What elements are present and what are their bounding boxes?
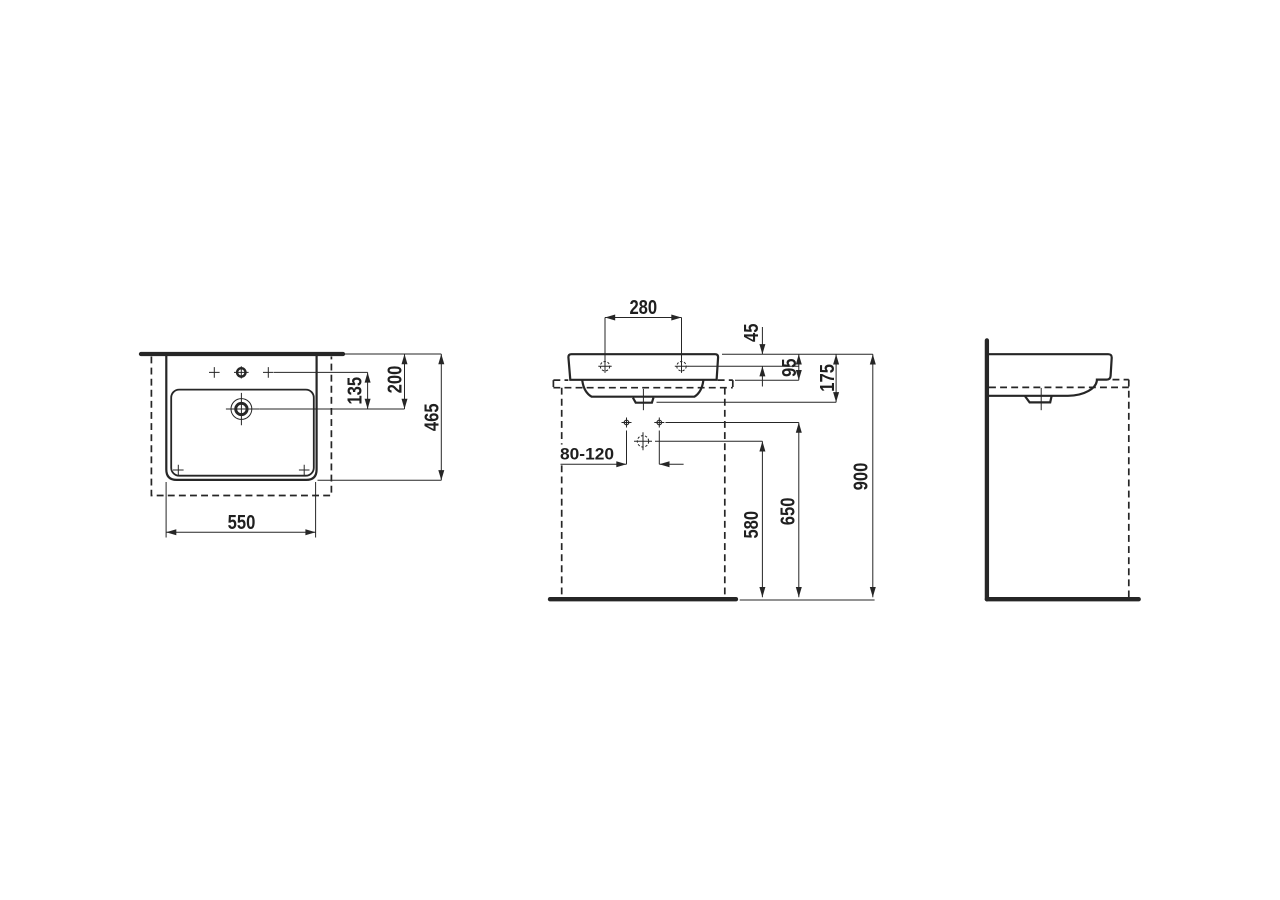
svg-text:175: 175 [817, 364, 839, 392]
svg-text:200: 200 [384, 366, 406, 394]
svg-text:580: 580 [741, 511, 763, 539]
svg-text:280: 280 [629, 297, 657, 319]
svg-text:550: 550 [228, 512, 256, 534]
svg-text:465: 465 [422, 403, 444, 431]
svg-text:95: 95 [779, 359, 801, 378]
svg-text:80-120: 80-120 [560, 445, 614, 464]
svg-text:900: 900 [851, 463, 873, 491]
svg-text:650: 650 [778, 498, 800, 526]
svg-text:45: 45 [741, 324, 763, 343]
svg-text:135: 135 [345, 377, 367, 405]
